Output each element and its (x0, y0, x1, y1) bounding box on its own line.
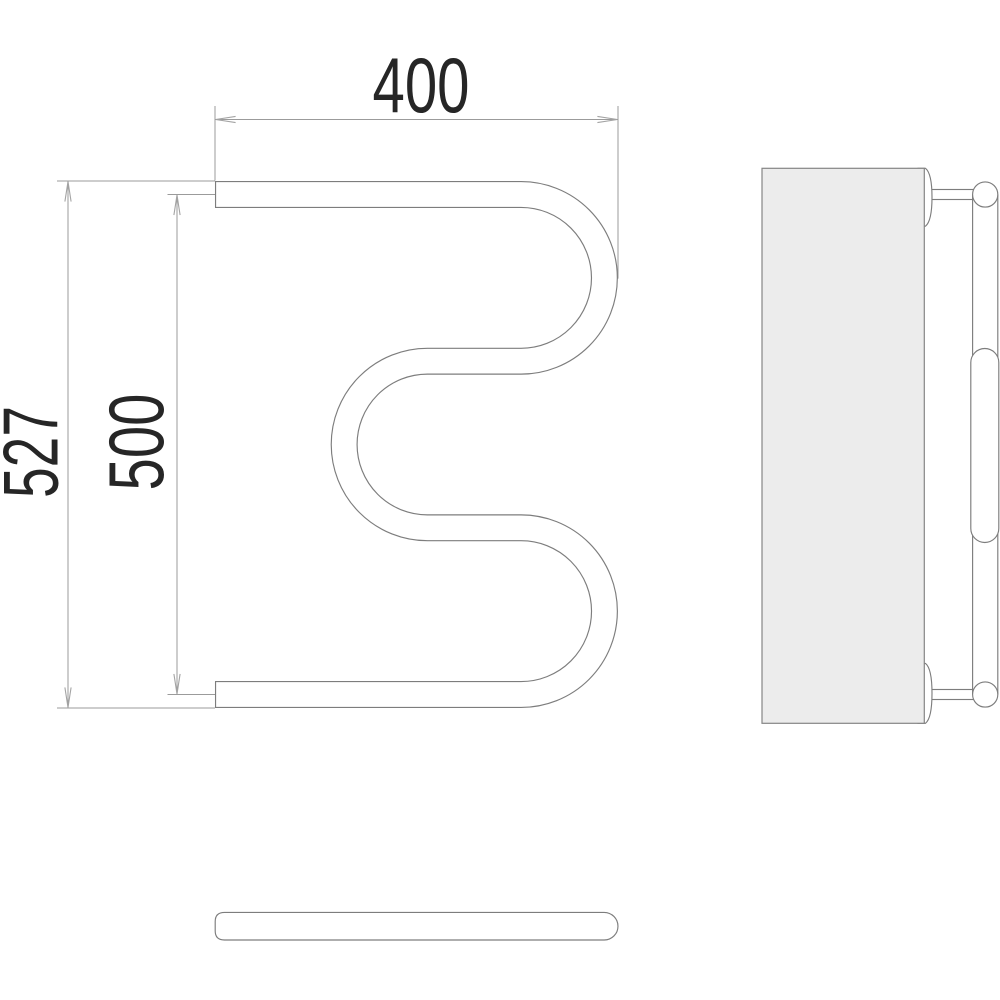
technical-drawing-page: 400 527 500 (0, 0, 1000, 1000)
dim-overall-width-label: 400 (373, 41, 470, 129)
side-view (762, 168, 999, 723)
pipe-outline (215, 195, 604, 695)
dimension-tube-center-height: 500 (92, 195, 215, 695)
wall-flange-top (973, 182, 998, 207)
dim-tube-center-height-label: 500 (92, 394, 180, 491)
side-panel (762, 168, 924, 723)
bottom-view (215, 912, 618, 940)
dimension-overall-width: 400 (215, 41, 618, 279)
front-view (215, 182, 604, 708)
riser-middle-section (971, 349, 999, 543)
wall-flange-bottom (973, 682, 998, 707)
tube-top-profile (215, 912, 618, 940)
pipe-interior (215, 195, 604, 695)
dim-overall-height-label: 527 (0, 406, 75, 498)
technical-drawing-canvas: 400 527 500 (0, 0, 1000, 1000)
